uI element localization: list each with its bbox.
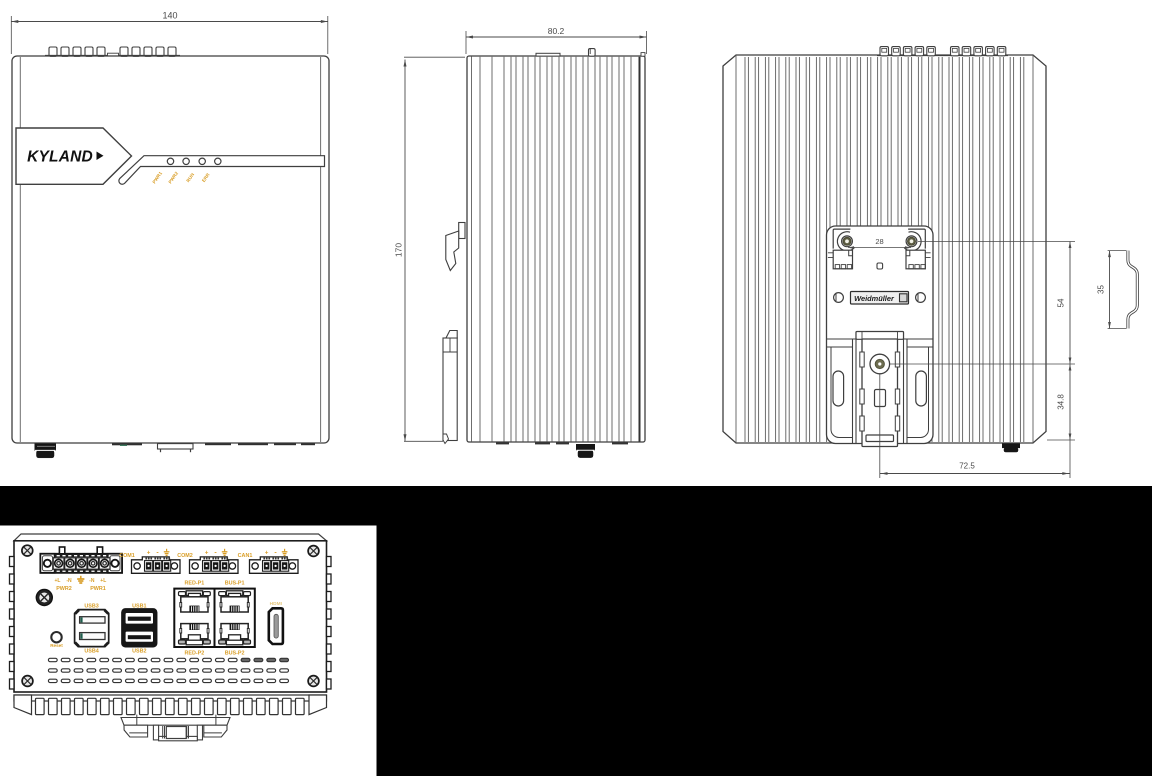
svg-text:HDMI: HDMI — [270, 601, 283, 607]
svg-text:RED-P2: RED-P2 — [185, 651, 205, 657]
svg-text:+: + — [147, 551, 151, 557]
svg-text:Weidmüller: Weidmüller — [854, 294, 895, 303]
svg-text:80.2: 80.2 — [548, 26, 565, 36]
svg-text:+L: +L — [55, 578, 61, 584]
svg-text:+L: +L — [100, 578, 106, 584]
svg-text:+: + — [265, 551, 269, 557]
svg-text:72.5: 72.5 — [959, 462, 975, 471]
svg-text:35: 35 — [1097, 285, 1106, 294]
svg-text:CAN1: CAN1 — [238, 553, 253, 559]
svg-text:COM1: COM1 — [119, 553, 135, 559]
svg-text:28: 28 — [875, 237, 883, 246]
svg-text:170: 170 — [394, 243, 404, 257]
svg-text:-N: -N — [89, 578, 95, 584]
svg-text:USB3: USB3 — [84, 603, 98, 609]
svg-text:BUS-P2: BUS-P2 — [225, 651, 245, 657]
svg-text:140: 140 — [162, 11, 177, 21]
svg-text:Reset: Reset — [50, 643, 63, 648]
svg-text:54: 54 — [1057, 298, 1066, 307]
svg-text:BUS-P1: BUS-P1 — [225, 580, 245, 586]
svg-text:PWR2: PWR2 — [56, 586, 72, 592]
svg-text:COM2: COM2 — [177, 553, 193, 559]
svg-text:USB4: USB4 — [84, 649, 98, 655]
svg-text:34.8: 34.8 — [1057, 394, 1066, 410]
svg-text:+: + — [205, 551, 209, 557]
svg-text:USB1: USB1 — [132, 603, 146, 609]
svg-text:-N: -N — [66, 578, 72, 584]
svg-text:PWR1: PWR1 — [90, 586, 106, 592]
svg-text:KYLAND: KYLAND — [27, 149, 93, 166]
svg-text:RED-P1: RED-P1 — [185, 580, 205, 586]
svg-text:USB2: USB2 — [132, 649, 146, 655]
